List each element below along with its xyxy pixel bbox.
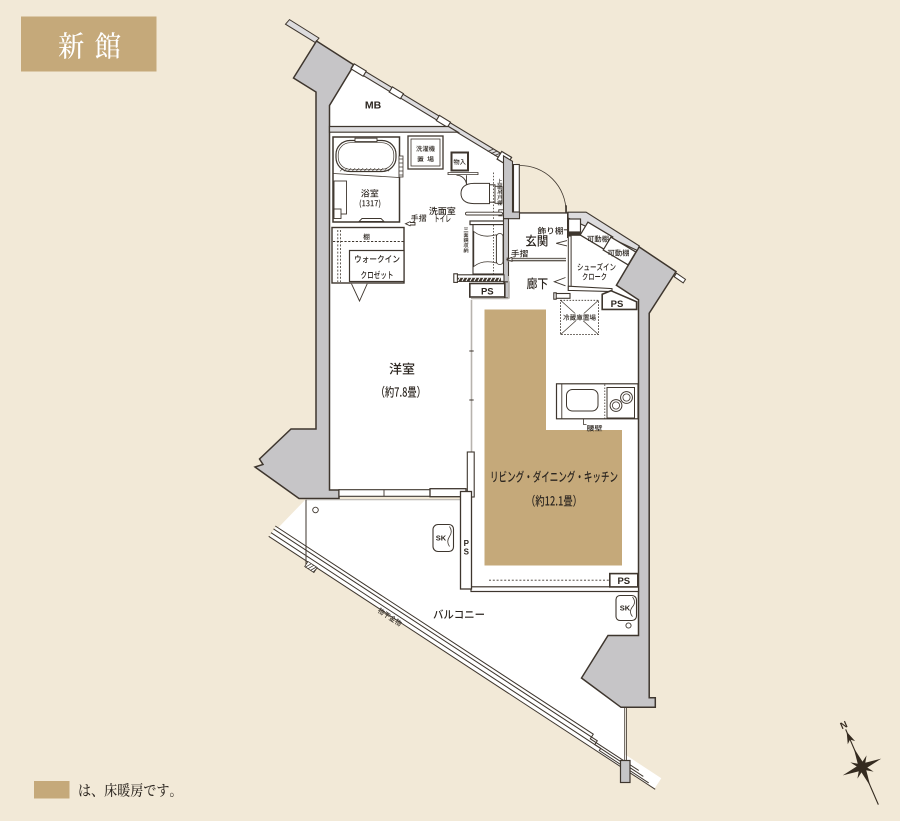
svg-text:SK: SK — [436, 533, 447, 542]
svg-text:S: S — [464, 548, 470, 557]
svg-text:SK: SK — [620, 604, 631, 613]
svg-text:PS: PS — [481, 287, 494, 298]
svg-text:MB: MB — [365, 100, 382, 112]
svg-text:PS: PS — [611, 299, 624, 310]
svg-text:PS: PS — [617, 576, 630, 587]
